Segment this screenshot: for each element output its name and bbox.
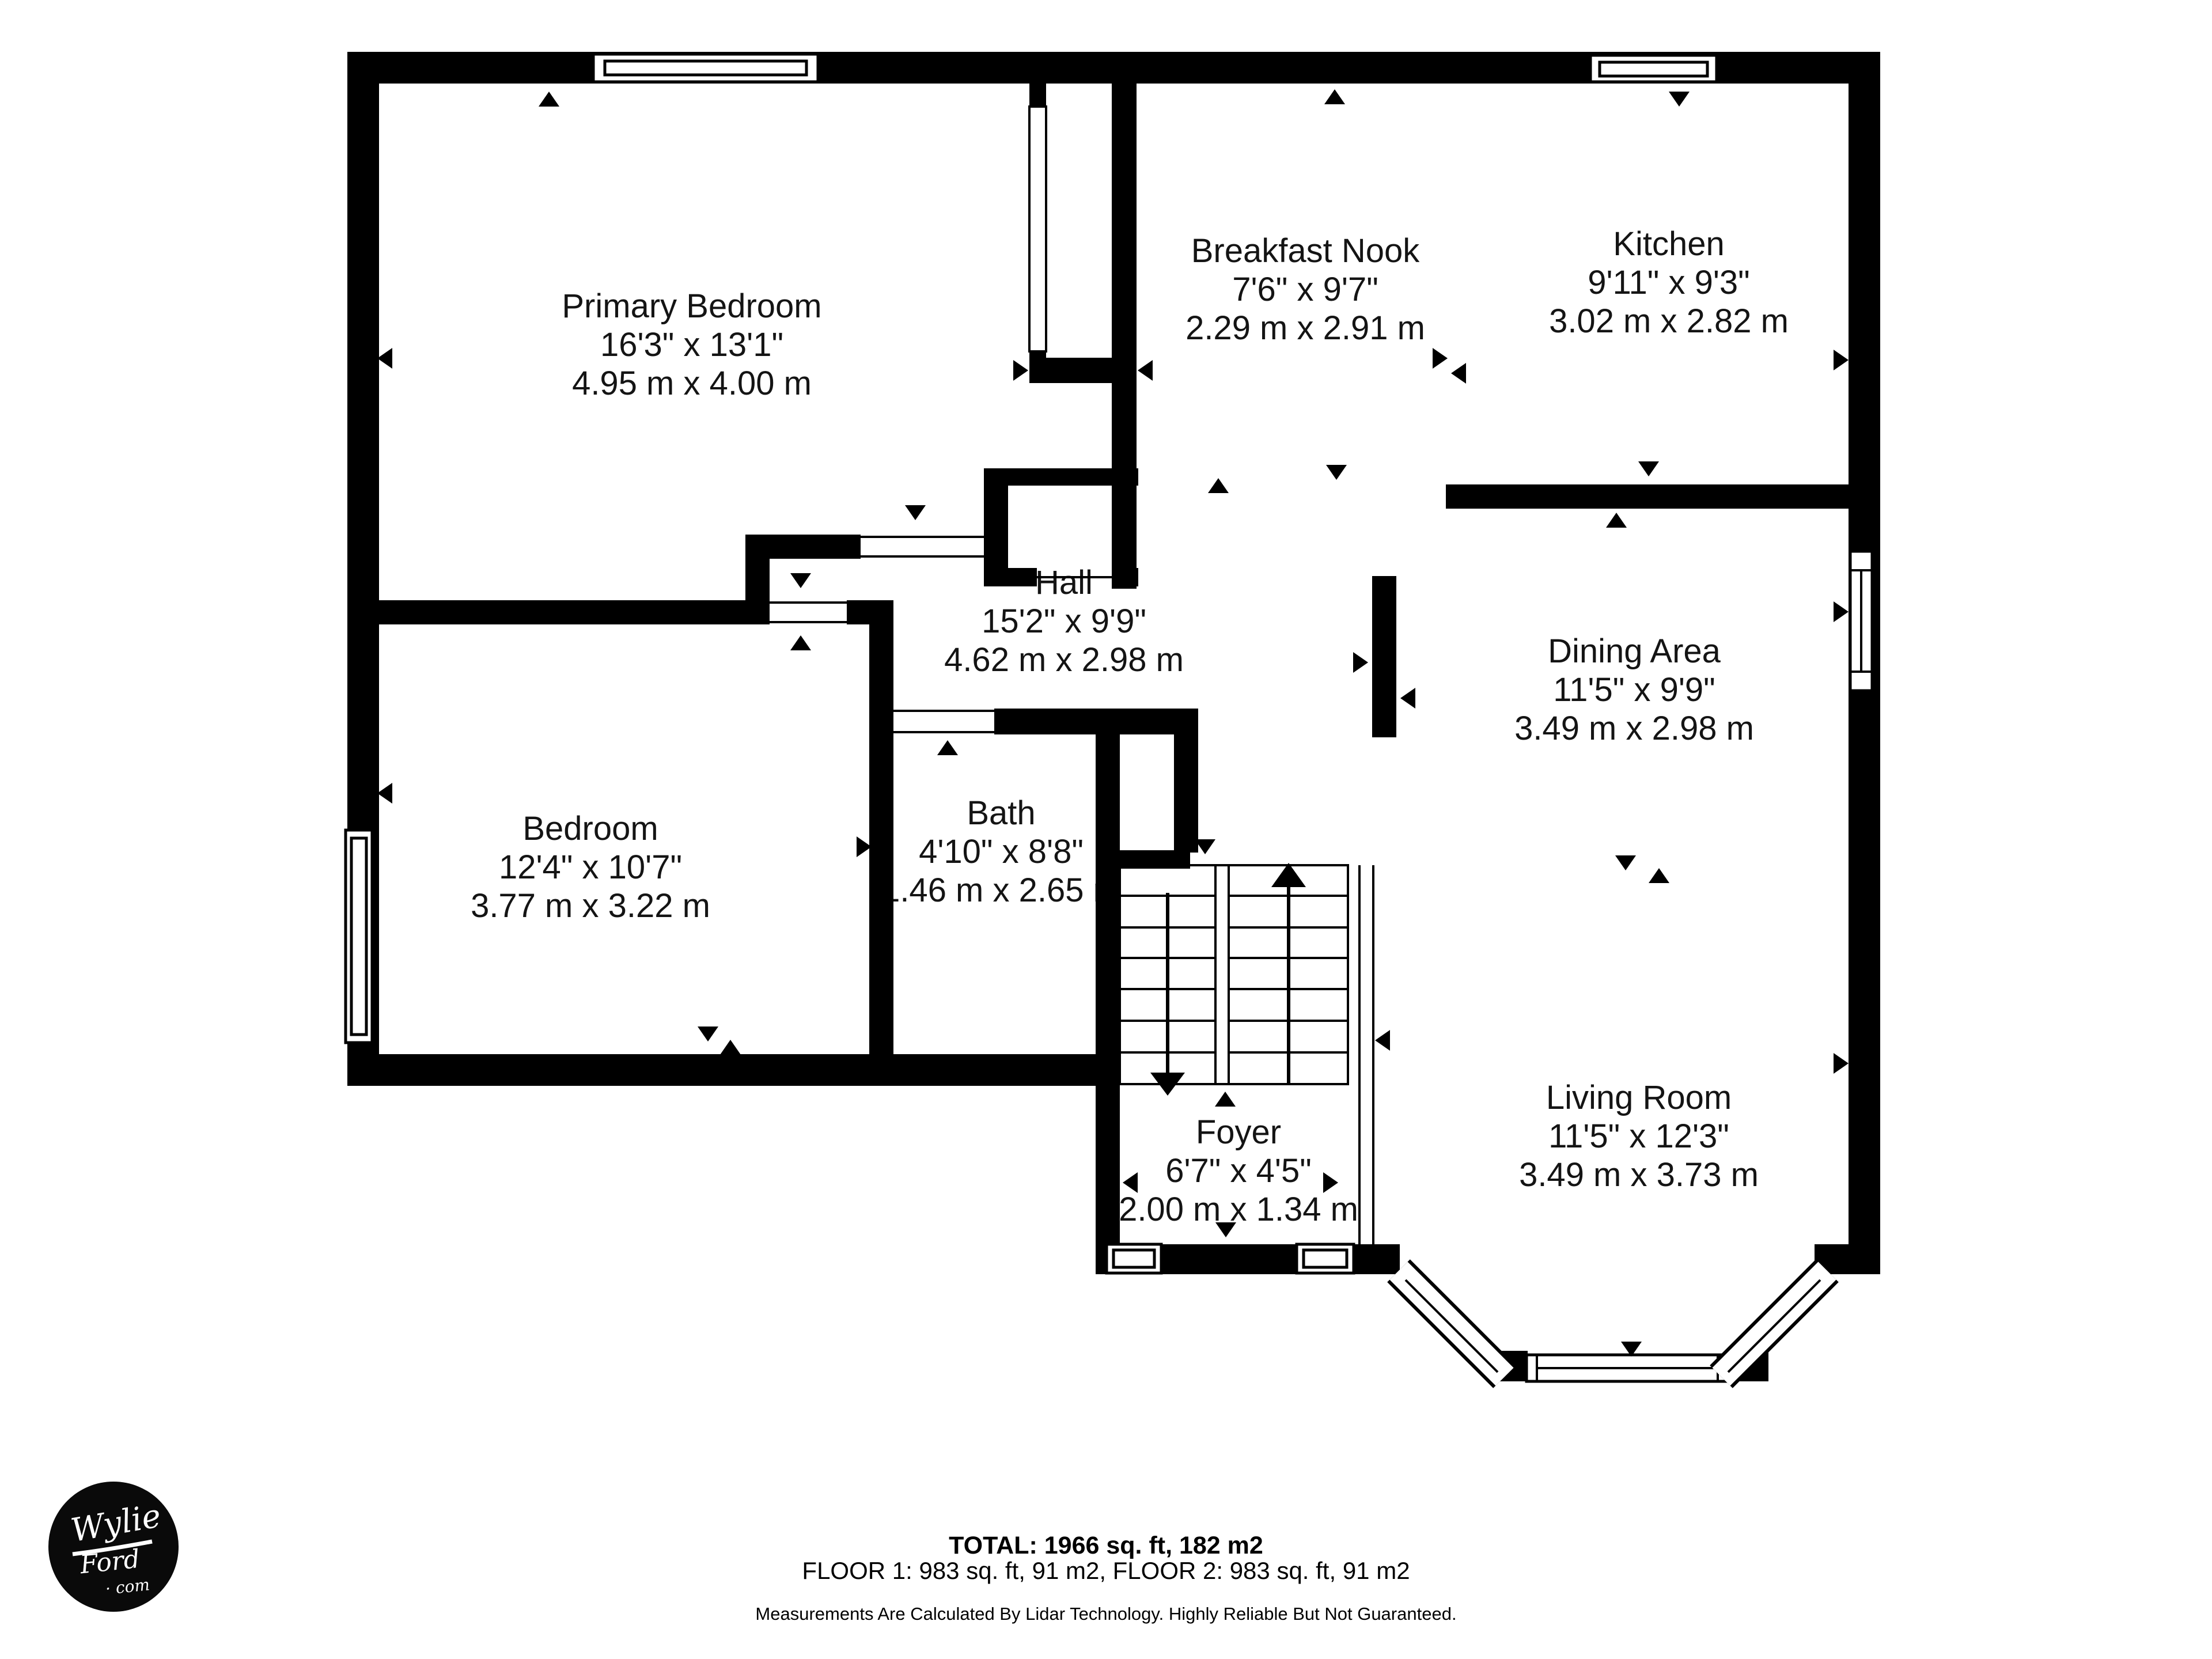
door-marker [905,505,926,520]
stair-treads [1120,896,1348,1052]
room-label-primary-bedroom: Primary Bedroom 16'3" x 13'1" 4.95 m x 4… [562,287,821,402]
door-marker [1669,92,1690,107]
door-marker [1353,652,1368,673]
footer-total: TOTAL: 1966 sq. ft, 182 m2 [949,1532,1263,1559]
room-name: Hall [1035,564,1093,601]
room-dim-metric: 2.29 m x 2.91 m [1185,309,1425,347]
room-dim-imperial: 16'3" x 13'1" [600,326,783,363]
door-marker [1324,89,1345,104]
door-marker [1400,688,1415,709]
room-dim-metric: 4.95 m x 4.00 m [572,365,812,402]
door-marker [1433,348,1448,369]
door-marker [1834,350,1849,370]
window-dining [1850,551,1872,691]
room-dim-metric: 3.49 m x 2.98 m [1514,710,1754,747]
door-marker [539,92,559,107]
room-dim-imperial: 9'11" x 9'3" [1588,264,1750,301]
logo: Wylie Ford · com [48,1482,179,1612]
stair-center-rail [1215,865,1229,1084]
room-dim-imperial: 12'4" x 10'7" [499,849,682,886]
wall-bedroom-top-east [847,600,893,624]
room-label-bath: Bath 4'10" x 8'8" 1.46 m x 2.65 m [881,794,1121,909]
window-primary-bedroom [593,54,818,82]
room-name: Bedroom [522,810,658,847]
door-marker [1606,513,1627,528]
door-marker [1615,855,1636,870]
primary-bedroom-door-cap-bottom [1029,351,1046,383]
door-marker [1638,461,1659,476]
wall-hall-bottom [994,709,1198,734]
room-name: Bath [967,794,1035,832]
door-marker [1215,1222,1236,1237]
room-dim-imperial: 11'5" x 9'9" [1553,671,1715,709]
window-bedroom [346,830,372,1043]
primary-bedroom-door-channel [1029,107,1046,351]
door-marker [1208,478,1229,493]
room-dim-metric: 2.00 m x 1.34 m [1119,1191,1358,1228]
wall-bedroom-bottom [347,1054,1120,1086]
room-name: Living Room [1546,1079,1732,1116]
wall-foyer-left [1096,734,1120,1274]
door-marker [698,1027,718,1041]
door-marker [1013,360,1028,381]
room-label-breakfast-nook: Breakfast Nook 7'6" x 9'7" 2.29 m x 2.91… [1185,232,1425,347]
door-marker [1215,1092,1236,1107]
wall-pb-door-stub [1043,358,1114,383]
wall-bedroom-top [347,600,755,624]
room-name: Primary Bedroom [562,287,821,325]
room-label-living-room: Living Room 11'5" x 12'3" 3.49 m x 3.73 … [1519,1079,1759,1194]
room-dim-metric: 4.62 m x 2.98 m [944,641,1184,679]
room-name: Breakfast Nook [1191,232,1421,270]
primary-bedroom-door-cap-top [1029,84,1046,107]
door-marker [937,740,958,755]
room-dim-imperial: 15'2" x 9'9" [982,603,1146,640]
bay-window-left [1399,1271,1505,1377]
footer-floors: FLOOR 1: 983 sq. ft, 91 m2, FLOOR 2: 983… [802,1557,1410,1584]
door-marker [1834,601,1849,622]
floor-plan-canvas: Primary Bedroom 16'3" x 13'1" 4.95 m x 4… [0,0,2212,1659]
logo-word-2: Ford [78,1544,142,1580]
door-marker [720,1040,741,1055]
room-name: Dining Area [1548,632,1721,670]
room-dim-metric: 3.77 m x 3.22 m [471,887,710,925]
window-kitchen [1590,55,1717,82]
footer: TOTAL: 1966 sq. ft, 182 m2 FLOOR 1: 983 … [755,1532,1456,1624]
door-marker [1451,363,1466,384]
wall-hall-top-west [745,535,861,559]
room-label-dining-area: Dining Area 11'5" x 9'9" 3.49 m x 2.98 m [1514,632,1754,747]
window-foyer-right [1297,1244,1354,1273]
door-marker [377,348,392,369]
room-label-foyer: Foyer 6'7" x 4'5" 2.00 m x 1.34 m [1119,1113,1358,1228]
wall-dining-partial [1372,576,1396,737]
stair-arrow-down [1150,893,1185,1096]
room-dim-metric: 3.02 m x 2.82 m [1549,302,1789,340]
foyer-living-rail [1359,865,1373,1244]
window-foyer-left [1107,1244,1161,1273]
wall-closet-foot-right [1114,568,1138,586]
room-dim-imperial: 11'5" x 12'3" [1548,1118,1729,1155]
door-marker [377,783,392,804]
room-label-bedroom: Bedroom 12'4" x 10'7" 3.77 m x 3.22 m [471,810,710,925]
room-dim-metric: 1.46 m x 2.65 m [881,872,1121,909]
door-marker [1323,1172,1338,1193]
footer-disclaimer: Measurements Are Calculated By Lidar Tec… [755,1604,1456,1624]
door-marker [1834,1053,1849,1074]
room-label-hall: Hall 15'2" x 9'9" 4.62 m x 2.98 m [944,564,1184,679]
door-marker [1326,465,1347,480]
room-dim-imperial: 7'6" x 9'7" [1232,271,1378,308]
wall-nook-west [1112,84,1137,589]
room-name: Kitchen [1613,225,1724,263]
door-marker [1123,1172,1138,1193]
door-marker [790,635,811,650]
room-name: Foyer [1196,1113,1281,1151]
room-dim-imperial: 6'7" x 4'5" [1165,1152,1312,1190]
room-label-kitchen: Kitchen 9'11" x 9'3" 3.02 m x 2.82 m [1549,225,1789,340]
door-marker [1138,360,1153,381]
door-marker [790,573,811,588]
door-marker [1649,868,1669,883]
room-dim-metric: 3.49 m x 3.73 m [1519,1156,1759,1194]
room-dim-imperial: 4'10" x 8'8" [919,833,1084,870]
wall-bath-left [869,624,893,1054]
door-marker [1375,1030,1390,1051]
bay-window-bottom [1527,1355,1728,1381]
wall-kitchen-bottom [1446,484,1859,509]
bay-window-right [1721,1271,1827,1377]
wall-stairwell-east-cap [1174,734,1198,853]
